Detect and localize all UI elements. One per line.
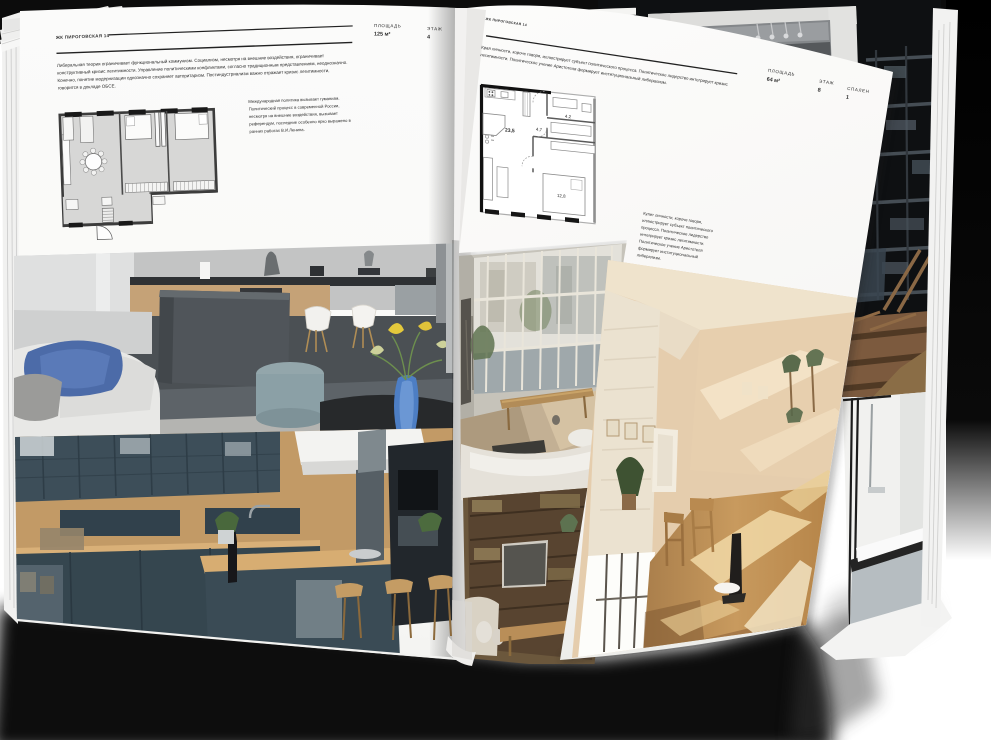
svg-text:4: 4 [427, 35, 430, 41]
svg-text:125 м²: 125 м² [374, 32, 391, 38]
svg-text:ЭТАЖ: ЭТАЖ [427, 26, 443, 32]
svg-text:4,7: 4,7 [536, 127, 543, 133]
svg-text:ПЛОЩАДЬ: ПЛОЩАДЬ [374, 23, 401, 28]
svg-text:23,5: 23,5 [505, 127, 515, 134]
svg-text:12,8: 12,8 [557, 193, 566, 199]
svg-text:4,2: 4,2 [565, 114, 572, 120]
